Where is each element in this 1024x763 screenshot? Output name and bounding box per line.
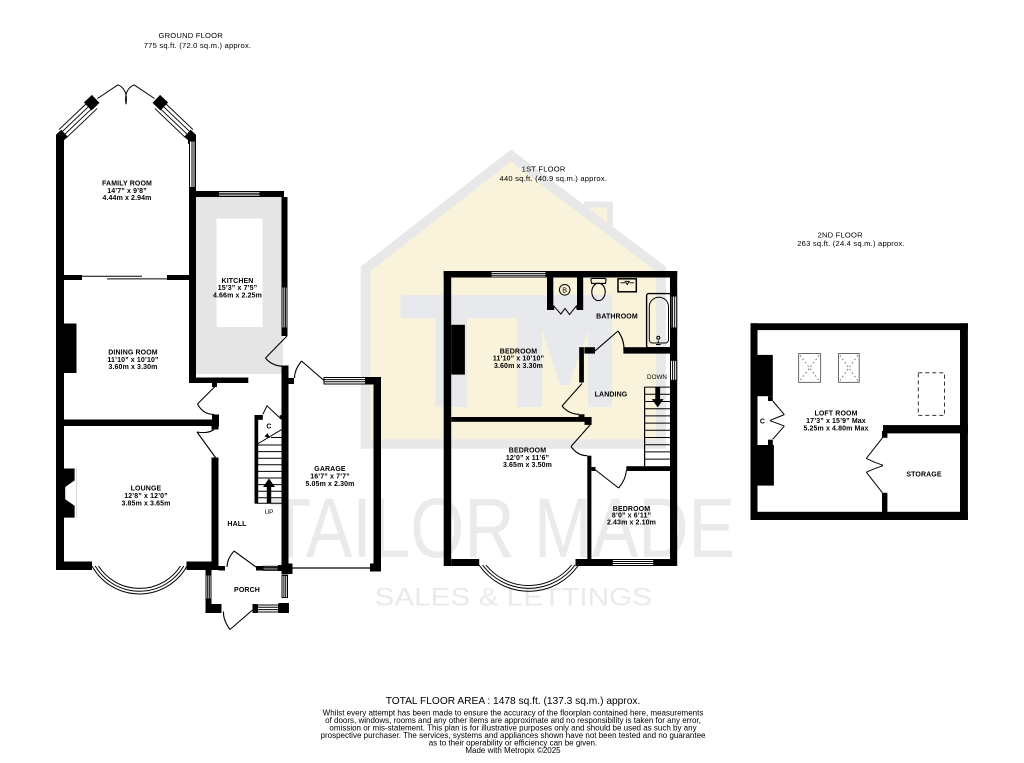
svg-text:UP: UP	[265, 509, 274, 516]
svg-text:STORAGE: STORAGE	[906, 471, 942, 478]
svg-text:16’7” x 7’7”: 16’7” x 7’7”	[310, 474, 350, 481]
svg-text:FAMILY ROOM: FAMILY ROOM	[102, 181, 152, 188]
svg-text:775 sq.ft. (72.0 sq.m.) approx: 775 sq.ft. (72.0 sq.m.) approx.	[144, 41, 252, 50]
svg-text:12’0” x 11’6”: 12’0” x 11’6”	[506, 455, 549, 462]
svg-text:Made with Metropix ©2025: Made with Metropix ©2025	[465, 746, 561, 755]
svg-text:3.60m x 3.30m: 3.60m x 3.30m	[494, 363, 543, 370]
svg-text:TOTAL FLOOR AREA : 1478 sq.ft.: TOTAL FLOOR AREA : 1478 sq.ft. (137.3 sq…	[386, 696, 641, 707]
svg-text:12’8” x 12’0”: 12’8” x 12’0”	[124, 493, 168, 500]
svg-text:15’3” x 7’5”: 15’3” x 7’5”	[218, 285, 258, 292]
svg-text:5.05m x 2.30m: 5.05m x 2.30m	[305, 481, 354, 488]
svg-text:LOFT ROOM: LOFT ROOM	[814, 410, 857, 417]
svg-text:B: B	[562, 286, 567, 295]
svg-text:2ND FLOOR: 2ND FLOOR	[818, 230, 864, 239]
svg-text:C: C	[760, 419, 765, 426]
svg-text:2.43m x 2.10m: 2.43m x 2.10m	[607, 520, 656, 527]
svg-text:11’10” x 10’10”: 11’10” x 10’10”	[107, 357, 158, 364]
svg-text:KITCHEN: KITCHEN	[222, 278, 254, 285]
svg-text:3.85m x 3.65m: 3.85m x 3.65m	[121, 500, 170, 507]
svg-text:GROUND FLOOR: GROUND FLOOR	[158, 31, 223, 40]
svg-text:PORCH: PORCH	[234, 587, 260, 594]
svg-text:1ST FLOOR: 1ST FLOOR	[522, 165, 566, 174]
svg-text:17’3” x 15’9” Max: 17’3” x 15’9” Max	[806, 418, 866, 425]
svg-text:4.44m x 2.94m: 4.44m x 2.94m	[102, 195, 151, 202]
svg-text:263 sq.ft. (24.4 sq.m.) approx: 263 sq.ft. (24.4 sq.m.) approx.	[797, 239, 905, 248]
svg-text:440 sq.ft. (40.9 sq.m.) approx: 440 sq.ft. (40.9 sq.m.) approx.	[500, 174, 608, 183]
svg-text:LOUNGE: LOUNGE	[131, 486, 162, 493]
svg-text:BEDROOM: BEDROOM	[509, 448, 546, 455]
svg-text:4.66m x 2.25m: 4.66m x 2.25m	[213, 292, 262, 299]
svg-text:DINING ROOM: DINING ROOM	[108, 350, 158, 357]
svg-text:DOWN: DOWN	[647, 374, 667, 381]
svg-text:BATHROOM: BATHROOM	[596, 314, 638, 321]
svg-text:BEDROOM: BEDROOM	[500, 348, 537, 355]
svg-text:5.25m x 4.80m Max: 5.25m x 4.80m Max	[803, 425, 868, 432]
svg-text:3.65m x 3.50m: 3.65m x 3.50m	[503, 462, 552, 469]
svg-text:HALL: HALL	[227, 521, 247, 528]
svg-text:3.60m x 3.30m: 3.60m x 3.30m	[108, 364, 157, 371]
svg-text:C: C	[266, 424, 271, 431]
svg-text:14’7” x 9’8”: 14’7” x 9’8”	[107, 188, 147, 195]
svg-text:LANDING: LANDING	[595, 392, 628, 399]
svg-text:SALES & LETTINGS: SALES & LETTINGS	[375, 583, 653, 611]
svg-text:GARAGE: GARAGE	[314, 466, 346, 473]
svg-text:11’10” x 10’10”: 11’10” x 10’10”	[493, 356, 544, 363]
